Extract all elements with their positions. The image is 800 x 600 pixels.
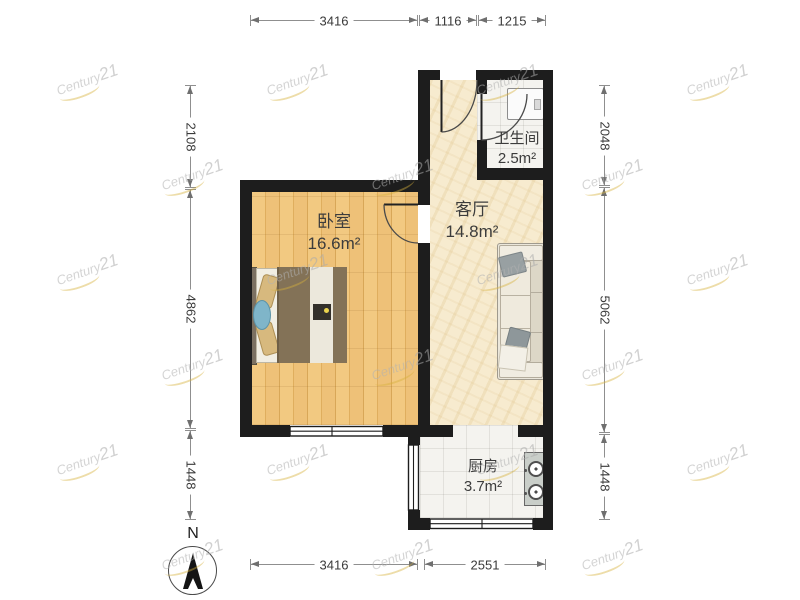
bedroom-window	[290, 427, 383, 437]
floorplan-canvas: 卧室 16.6m² 客厅 14.8m² 卫生间 2.5m² 厨房 3.7m² 3…	[0, 0, 800, 600]
living-label: 客厅 14.8m²	[412, 199, 532, 244]
bedroom-label: 卧室 16.6m²	[274, 211, 394, 256]
bathroom-label: 卫生间 2.5m²	[479, 129, 555, 169]
living-area: 14.8m²	[412, 221, 532, 243]
living-name: 客厅	[412, 199, 532, 221]
bedroom-area: 16.6m²	[274, 233, 394, 255]
doors-windows-overlay	[0, 0, 800, 600]
bathroom-name: 卫生间	[479, 129, 555, 149]
bedroom-name: 卧室	[274, 211, 394, 233]
bathroom-area: 2.5m²	[479, 149, 555, 169]
kitchen-left-window	[409, 445, 419, 510]
kitchen-label: 厨房 3.7m²	[423, 457, 543, 497]
kitchen-area: 3.7m²	[423, 477, 543, 497]
kitchen-bottom-window	[430, 519, 533, 529]
kitchen-name: 厨房	[423, 457, 543, 477]
entrance-door	[442, 80, 478, 132]
